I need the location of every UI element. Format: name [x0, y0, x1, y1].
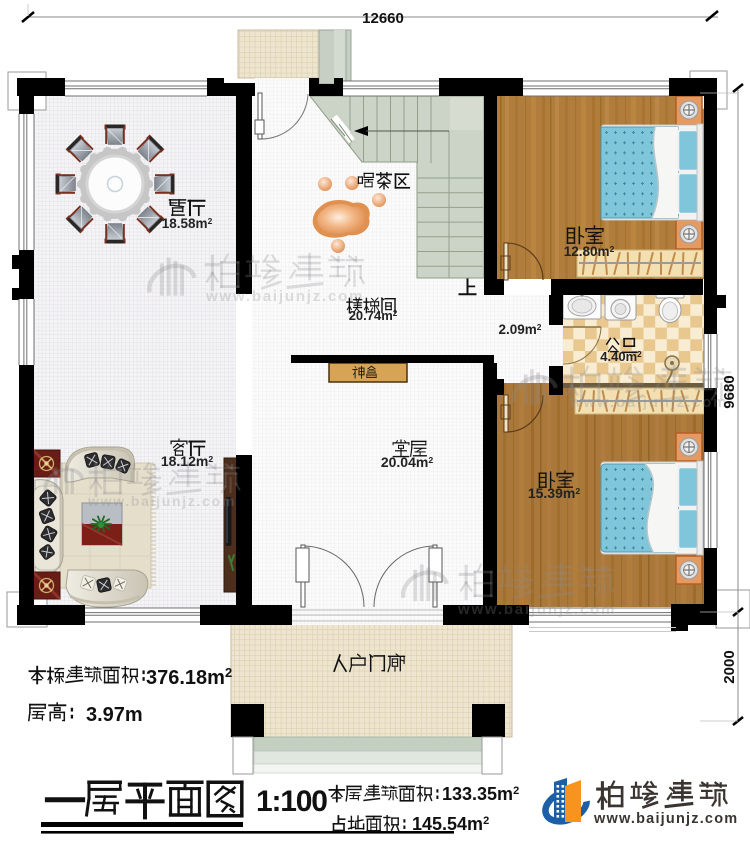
svg-text:2.09m2: 2.09m2: [499, 322, 542, 337]
svg-text:www.baijunjz.com: www.baijunjz.com: [593, 811, 738, 827]
svg-text:2000: 2000: [721, 650, 738, 683]
svg-text:20.04m2: 20.04m2: [381, 454, 433, 470]
svg-text:9680: 9680: [721, 375, 738, 408]
svg-text:12.80m2: 12.80m2: [564, 244, 615, 259]
svg-text:3.97m: 3.97m: [86, 704, 143, 726]
svg-text:133.35m2: 133.35m2: [442, 784, 519, 804]
svg-text:376.18m2: 376.18m2: [146, 665, 232, 689]
svg-text:4.40m2: 4.40m2: [600, 349, 642, 364]
svg-text:145.54m2: 145.54m2: [412, 814, 489, 834]
svg-text:www.baijunjz.com: www.baijunjz.com: [569, 394, 728, 411]
svg-text:12660: 12660: [362, 10, 404, 27]
svg-text:www.baijunjz.com: www.baijunjz.com: [205, 288, 364, 305]
svg-text:18.58m2: 18.58m2: [162, 216, 213, 231]
svg-text:www.baijunjz.com: www.baijunjz.com: [457, 601, 616, 618]
svg-text:1:100: 1:100: [256, 785, 327, 818]
svg-text:20.74m2: 20.74m2: [349, 308, 398, 323]
svg-text:15.39m2: 15.39m2: [528, 485, 580, 501]
svg-text:18.12m2: 18.12m2: [161, 453, 213, 469]
svg-text:www.baijunjz.com: www.baijunjz.com: [87, 493, 236, 509]
